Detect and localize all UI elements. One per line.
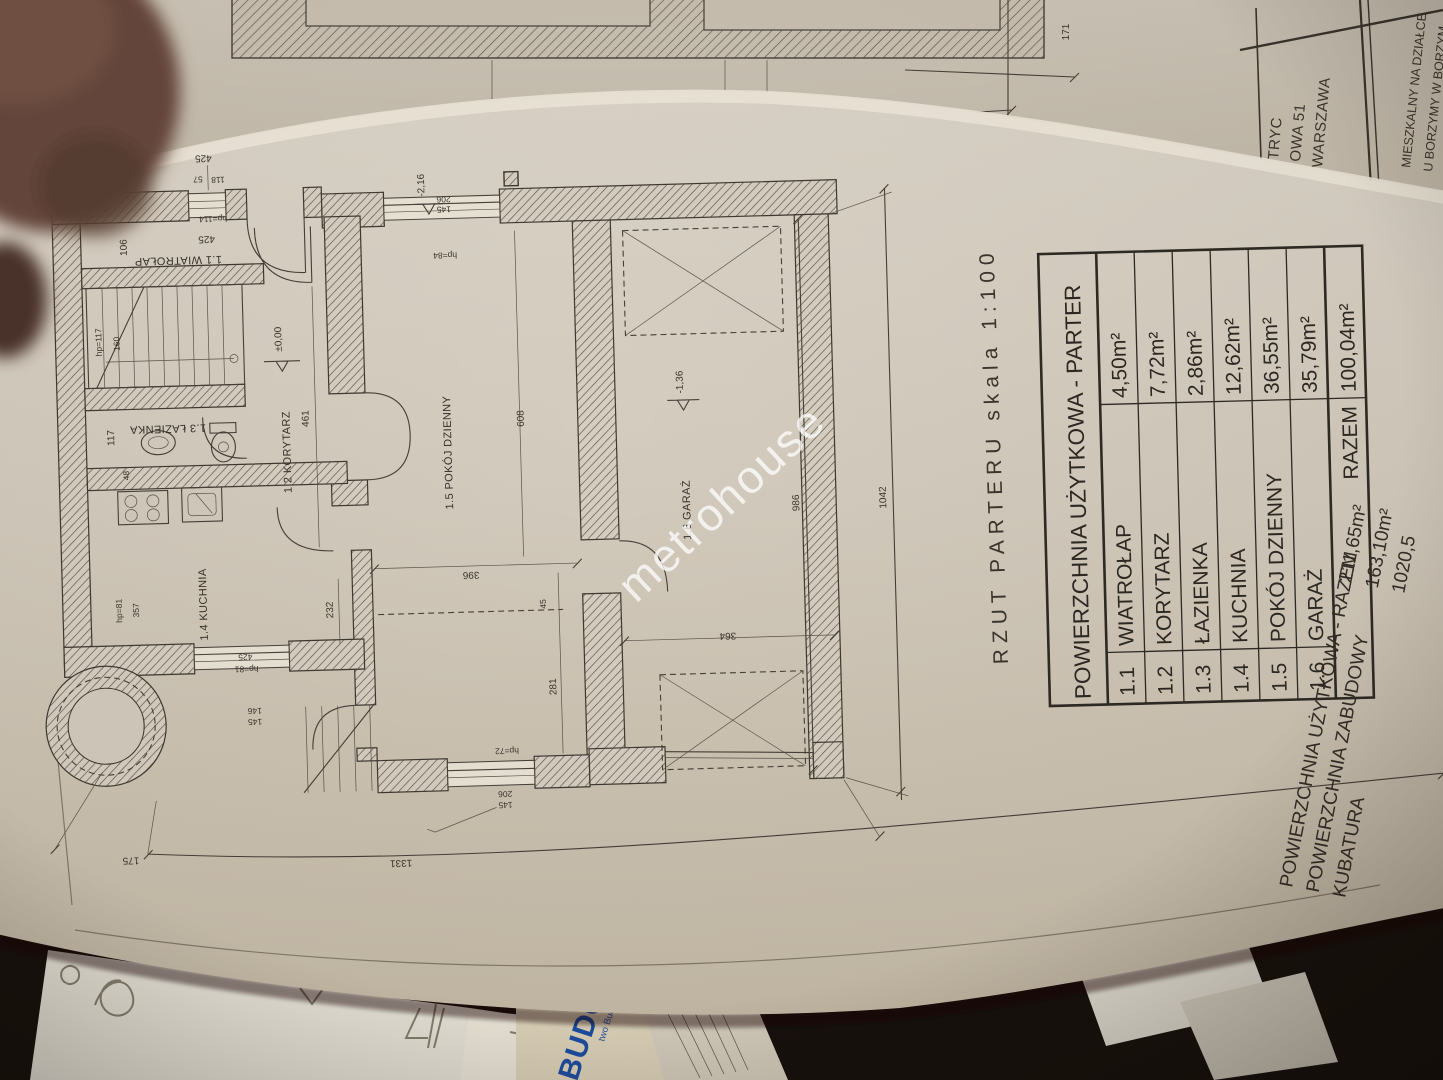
photo-of-floorplan: BUDOW two Budowl 499 440 [0,0,1443,1080]
vignette [0,0,1443,1080]
scene: BUDOW two Budowl 499 440 [0,0,1443,1080]
